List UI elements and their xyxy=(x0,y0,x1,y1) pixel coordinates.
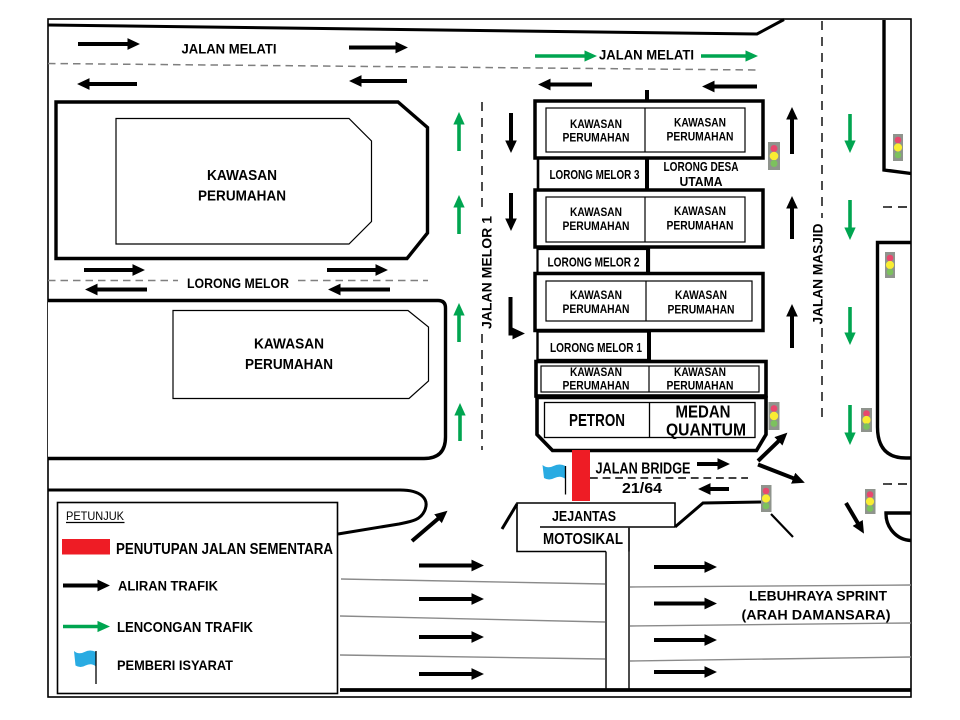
svg-text:JALAN MELOR 1: JALAN MELOR 1 xyxy=(479,216,495,329)
svg-text:KAWASAN: KAWASAN xyxy=(570,288,622,302)
svg-text:KAWASAN: KAWASAN xyxy=(570,205,622,219)
svg-text:JALAN MELATI: JALAN MELATI xyxy=(599,48,694,63)
svg-text:LEBUHRAYA SPRINT: LEBUHRAYA SPRINT xyxy=(749,588,887,604)
svg-text:MEDAN: MEDAN xyxy=(676,402,731,422)
svg-text:(ARAH DAMANSARA): (ARAH DAMANSARA) xyxy=(742,607,891,623)
svg-text:LORONG DESA: LORONG DESA xyxy=(664,160,739,174)
svg-text:PETUNJUK: PETUNJUK xyxy=(66,509,124,523)
svg-text:PERUMAHAN: PERUMAHAN xyxy=(668,303,735,317)
svg-text:LENCONGAN TRAFIK: LENCONGAN TRAFIK xyxy=(117,620,253,636)
svg-text:PEMBERI ISYARAT: PEMBERI ISYARAT xyxy=(117,657,233,673)
svg-text:PERUMAHAN: PERUMAHAN xyxy=(245,357,333,373)
svg-text:KAWASAN: KAWASAN xyxy=(570,117,622,131)
svg-text:PERUMAHAN: PERUMAHAN xyxy=(563,219,630,233)
svg-text:PENUTUPAN JALAN SEMENTARA: PENUTUPAN JALAN SEMENTARA xyxy=(116,541,333,558)
svg-text:PERUMAHAN: PERUMAHAN xyxy=(198,189,286,205)
svg-text:KAWASAN: KAWASAN xyxy=(675,288,727,302)
svg-text:LORONG MELOR 3: LORONG MELOR 3 xyxy=(550,167,640,182)
svg-text:LORONG MELOR 1: LORONG MELOR 1 xyxy=(550,340,642,355)
svg-text:ALIRAN TRAFIK: ALIRAN TRAFIK xyxy=(118,579,218,594)
svg-text:KAWASAN: KAWASAN xyxy=(674,365,726,379)
svg-text:JEJANTAS: JEJANTAS xyxy=(552,508,616,525)
svg-text:JALAN BRIDGE: JALAN BRIDGE xyxy=(596,461,691,478)
svg-text:KAWASAN: KAWASAN xyxy=(674,204,726,218)
svg-text:PERUMAHAN: PERUMAHAN xyxy=(667,130,734,144)
svg-text:UTAMA: UTAMA xyxy=(680,175,723,189)
svg-text:21/64: 21/64 xyxy=(622,481,662,497)
svg-text:LORONG MELOR: LORONG MELOR xyxy=(187,276,289,291)
svg-text:KAWASAN: KAWASAN xyxy=(207,168,277,184)
svg-text:PERUMAHAN: PERUMAHAN xyxy=(667,219,734,233)
svg-text:KAWASAN: KAWASAN xyxy=(570,365,622,379)
svg-text:PERUMAHAN: PERUMAHAN xyxy=(563,302,630,316)
svg-text:PERUMAHAN: PERUMAHAN xyxy=(563,131,630,145)
svg-text:JALAN MELATI: JALAN MELATI xyxy=(182,41,277,57)
svg-text:KAWASAN: KAWASAN xyxy=(254,337,324,353)
svg-text:LORONG MELOR 2: LORONG MELOR 2 xyxy=(548,255,640,270)
svg-text:MOTOSIKAL: MOTOSIKAL xyxy=(543,531,623,548)
svg-text:QUANTUM: QUANTUM xyxy=(666,420,746,440)
svg-text:PERUMAHAN: PERUMAHAN xyxy=(667,379,734,393)
svg-text:KAWASAN: KAWASAN xyxy=(674,116,726,130)
svg-text:PERUMAHAN: PERUMAHAN xyxy=(563,379,630,393)
svg-text:PETRON: PETRON xyxy=(569,410,625,430)
svg-text:JALAN MASJID: JALAN MASJID xyxy=(810,224,826,325)
